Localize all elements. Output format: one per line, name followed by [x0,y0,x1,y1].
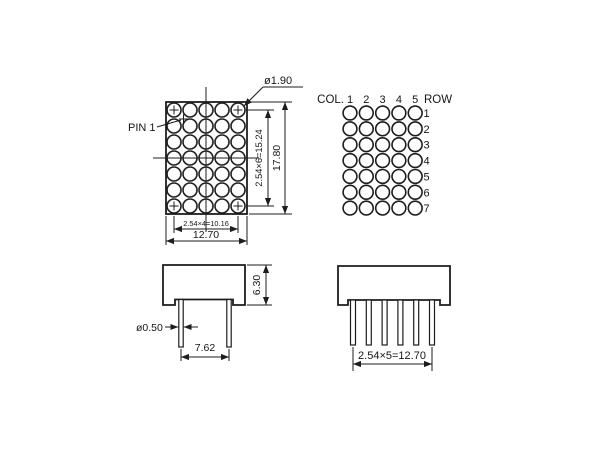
dot-diameter-callout: ø1.90 [244,75,303,106]
row-header-label: ROW [424,94,452,106]
dot [408,201,422,215]
dot [376,122,390,136]
col-header-label: COL. [317,94,344,106]
dot [392,106,406,120]
dot [343,154,357,168]
pin-pitch-label: 2.54×5=12.70 [358,350,426,362]
dot [376,201,390,215]
dot [376,138,390,152]
dot [392,138,406,152]
dot [359,185,373,199]
dot [408,154,422,168]
dot [376,170,390,184]
datasheet-page: PIN 1 ø1.90 2.54×6=15.24 17.80 2.54×4=10… [0,0,600,450]
dot-diameter-label: ø1.90 [264,75,292,87]
dot [408,170,422,184]
dot [408,122,422,136]
row-number-label: 2 [424,124,430,136]
dot [343,201,357,215]
dot [408,138,422,152]
pin-diameter-callout: ø0.50 [136,322,198,334]
dot [343,170,357,184]
side-view: 6.30 ø0.50 7.62 [136,265,272,361]
pin1-label: PIN 1 [128,122,156,134]
led-dot [215,119,229,133]
pin [398,300,403,345]
led-dot [167,183,181,197]
dot [343,122,357,136]
height-label: 17.80 [271,145,283,171]
dot [408,185,422,199]
col-number-label: 1 [347,94,353,106]
row-number-labels: 1234567 [424,108,430,215]
led-dot [215,167,229,181]
dot [343,106,357,120]
led-dot [183,103,197,117]
corner-crosshair [170,202,179,211]
dot [376,185,390,199]
row-number-label: 1 [424,108,430,120]
corner-crosshair [234,106,243,115]
row-number-label: 5 [424,171,430,183]
led-dot [183,167,197,181]
col-number-label: 5 [412,94,418,106]
dot [376,106,390,120]
column-number-labels: 12345 [347,94,418,106]
led-dot [215,183,229,197]
dot [392,185,406,199]
row-number-label: 6 [424,187,430,199]
pin [179,300,183,348]
led-dot [231,135,245,149]
led-dot [231,119,245,133]
led-dot [231,183,245,197]
row-number-label: 3 [424,140,430,152]
led-dot [183,183,197,197]
pin-diameter-label: ø0.50 [136,322,163,334]
front-view: PIN 1 ø1.90 2.54×6=15.24 17.80 2.54×4=10… [128,75,303,245]
dot [376,154,390,168]
body-height-label: 6.30 [251,275,263,296]
dot [408,106,422,120]
col-pitch-label: 2.54×4=10.16 [183,219,229,228]
led-dot [215,135,229,149]
pin-spacing-dimension: 7.62 [181,342,229,361]
col-number-label: 2 [363,94,369,106]
dot [359,106,373,120]
dot [392,201,406,215]
pin-pitch-dimension: 2.54×5=12.70 [353,347,432,371]
led-dot [183,135,197,149]
led-dot [231,167,245,181]
leader-line [244,87,263,106]
dot [392,154,406,168]
row-pitch-label: 2.54×6=15.24 [254,129,264,186]
dot [359,201,373,215]
pin-spacing-label: 7.62 [195,342,216,354]
bottom-view: 2.54×5=12.70 [338,266,450,371]
col-number-label: 4 [396,94,402,106]
corner-crosshair [170,106,179,115]
pin [227,300,231,348]
bottom-view-pins [351,300,435,345]
led-dot [183,199,197,213]
dot-grid [343,106,422,215]
pin [351,300,356,345]
pin [430,300,435,345]
side-view-pins [179,300,231,348]
width-label: 12.70 [193,229,219,241]
dot [343,185,357,199]
technical-drawing: PIN 1 ø1.90 2.54×6=15.24 17.80 2.54×4=10… [0,0,600,450]
dot [359,122,373,136]
pin [382,300,387,345]
row-number-label: 7 [424,203,430,215]
pin-layout-view: COL. ROW 12345 1234567 [317,94,452,215]
corner-crosshair [234,202,243,211]
dot [392,122,406,136]
dot [359,154,373,168]
bottom-body-outline [338,266,450,305]
pin [366,300,371,345]
led-dot [167,167,181,181]
led-dot [167,135,181,149]
side-body-outline [163,265,245,305]
dot [359,170,373,184]
pin [414,300,419,345]
led-dot [215,199,229,213]
led-dot [215,103,229,117]
row-number-label: 4 [424,156,430,168]
col-number-label: 3 [380,94,386,106]
body-height-dimension: 6.30 [247,265,272,305]
dot [392,170,406,184]
led-dot [183,119,197,133]
dot [359,138,373,152]
dot [343,138,357,152]
